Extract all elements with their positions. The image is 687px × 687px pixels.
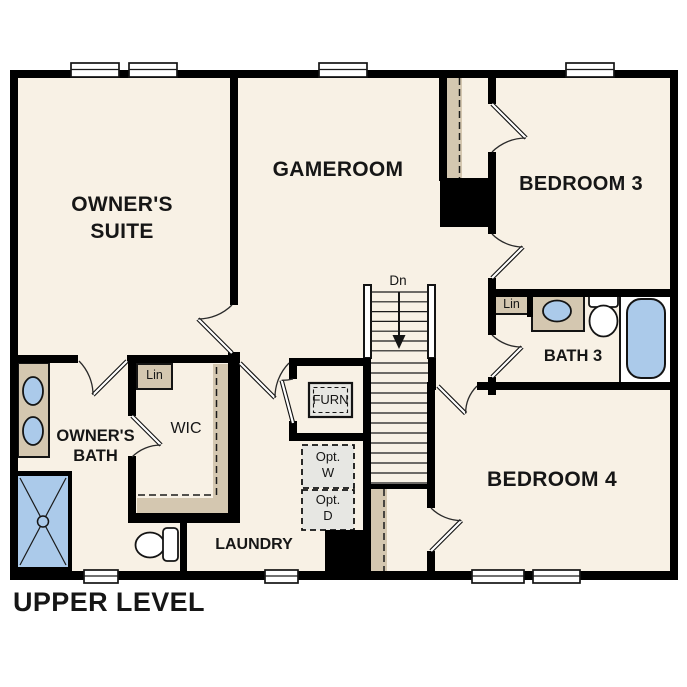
opt-d-line2: D bbox=[323, 508, 332, 523]
room-label-owners-bath: OWNER'S BATH bbox=[45, 427, 146, 466]
label-furnace: FURN bbox=[309, 392, 352, 408]
wall-gameroom-east bbox=[439, 70, 447, 181]
wall-wic-south bbox=[128, 513, 240, 523]
wall-bedroom4-west-lower bbox=[427, 551, 435, 573]
wall-furnace-south bbox=[289, 433, 371, 441]
room-label-bedroom3: BEDROOM 3 bbox=[486, 171, 676, 198]
plan-title: UPPER LEVEL bbox=[13, 587, 205, 618]
floor-plan-drawing bbox=[0, 0, 687, 687]
owners-bath-line2: BATH bbox=[73, 447, 118, 465]
stair-rail-right bbox=[428, 285, 435, 358]
shower-drain bbox=[38, 516, 49, 527]
wall-owners-suite-south-b bbox=[127, 355, 240, 363]
owners-suite-line2: SUITE bbox=[90, 220, 153, 243]
room-label-bedroom4: BEDROOM 4 bbox=[452, 466, 652, 493]
room-label-bath3: BATH 3 bbox=[523, 347, 623, 367]
wall-bath3-south bbox=[477, 382, 670, 390]
wall-bath3-north bbox=[488, 289, 670, 297]
opt-d-line1: Opt. bbox=[316, 492, 341, 507]
stair-base-edge bbox=[371, 484, 428, 489]
label-optional-dryer: Opt. D bbox=[302, 492, 354, 524]
wall-furnace-north bbox=[289, 358, 371, 366]
wall-bedroom3-west-a bbox=[488, 70, 496, 104]
stair-rail-left bbox=[364, 285, 371, 358]
floor-plan: OWNER'S SUITE GAMEROOM BEDROOM 3 BEDROOM… bbox=[0, 0, 687, 687]
exterior-wall-left bbox=[10, 70, 18, 580]
wall-bedroom4-west-upper bbox=[427, 382, 435, 508]
owners-bath-line1: OWNER'S bbox=[56, 427, 134, 445]
shower bbox=[14, 471, 72, 569]
wall-wic-east bbox=[228, 352, 240, 515]
owners-bath-sink-2 bbox=[23, 417, 43, 445]
bath3-sink bbox=[543, 301, 571, 322]
opt-w-line1: Opt. bbox=[316, 449, 341, 464]
room-label-wic: WIC bbox=[156, 420, 216, 438]
owners-bath-sink-1 bbox=[23, 377, 43, 405]
wall-furnace-west-upper bbox=[289, 358, 297, 379]
label-linen-bath3: Lin bbox=[495, 297, 528, 311]
wic-shelf-east bbox=[213, 364, 228, 513]
wic-shelf-south bbox=[137, 498, 228, 513]
room-label-laundry: LAUNDRY bbox=[204, 536, 304, 554]
opt-w-line2: W bbox=[322, 465, 334, 480]
wall-owners-suite-south-a bbox=[10, 355, 78, 363]
label-linen-wic: Lin bbox=[137, 368, 172, 382]
room-label-gameroom: GAMEROOM bbox=[238, 156, 438, 183]
wall-bath-laundry-divider bbox=[180, 523, 187, 571]
label-stairs-down: Dn bbox=[377, 273, 419, 288]
room-label-owners-suite: OWNER'S SUITE bbox=[24, 191, 220, 245]
label-optional-washer: Opt. W bbox=[302, 449, 354, 481]
owners-suite-line1: OWNER'S bbox=[71, 193, 173, 216]
wall-wic-west-upper bbox=[128, 363, 136, 416]
bath3-toilet bbox=[589, 294, 618, 337]
bathtub bbox=[620, 293, 671, 384]
exterior-wall-right bbox=[670, 70, 678, 580]
wall-owners-suite-east bbox=[230, 70, 238, 305]
laundry-chase bbox=[325, 530, 365, 573]
